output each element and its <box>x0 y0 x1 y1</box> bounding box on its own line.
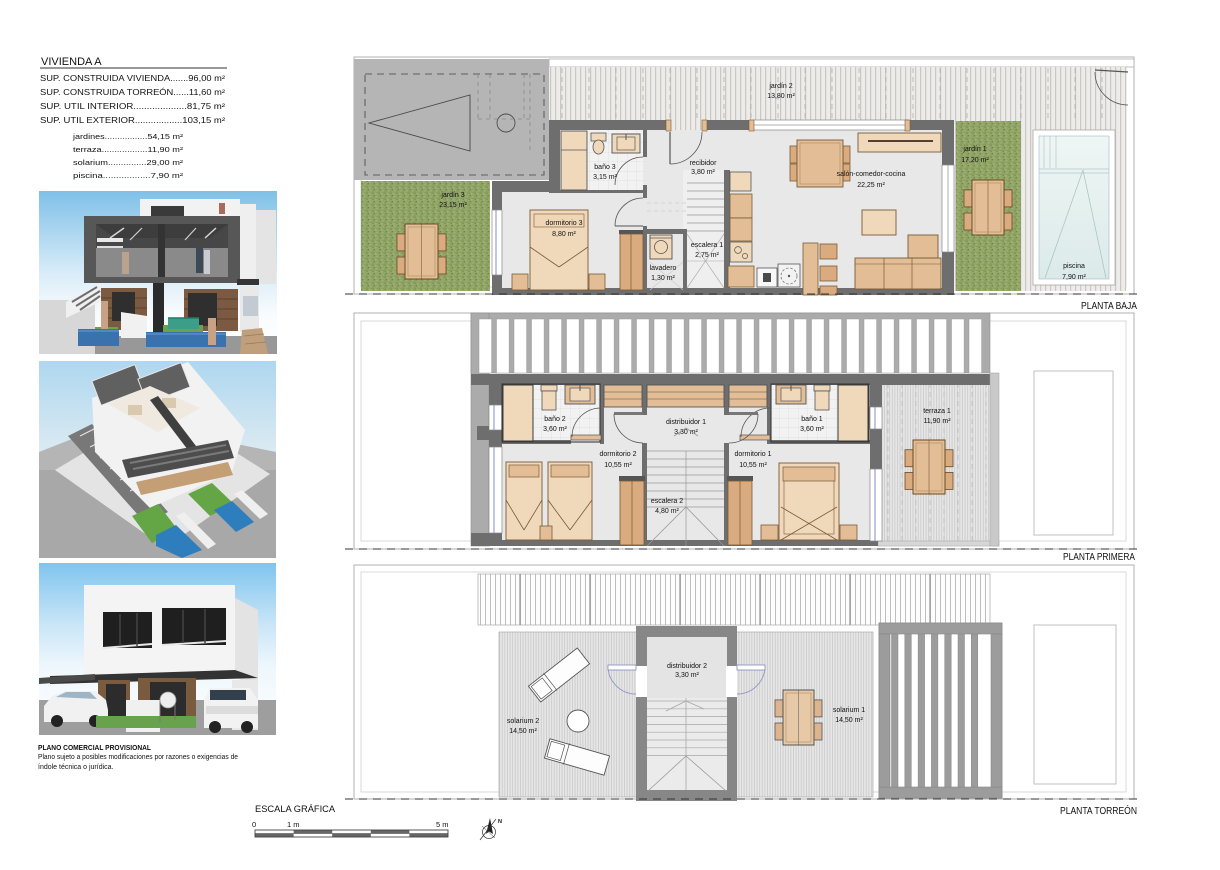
svg-text:lavadero: lavadero <box>650 265 677 272</box>
svg-text:terraza..................11,90: terraza..................11,90 m² <box>73 145 184 154</box>
svg-text:solarium...............29,00 m: solarium...............29,00 m² <box>73 158 184 167</box>
svg-text:N: N <box>498 819 502 825</box>
svg-text:10,55 m²: 10,55 m² <box>739 462 767 469</box>
svg-text:1,30 m²: 1,30 m² <box>651 275 675 282</box>
svg-text:2,75 m²: 2,75 m² <box>695 252 719 259</box>
svg-text:escalera 2: escalera 2 <box>651 498 683 505</box>
svg-text:jardín 3: jardín 3 <box>440 192 464 199</box>
svg-text:0: 0 <box>252 820 256 829</box>
svg-text:8,80 m²: 8,80 m² <box>552 231 576 238</box>
svg-text:3,15 m²: 3,15 m² <box>593 174 617 181</box>
svg-text:terraza 1: terraza 1 <box>923 408 951 415</box>
svg-text:ESCALA GRÁFICA: ESCALA GRÁFICA <box>255 804 336 814</box>
svg-text:dormitorio 3: dormitorio 3 <box>546 220 583 227</box>
svg-text:23,15 m²: 23,15 m² <box>439 202 467 209</box>
svg-text:13,80 m²: 13,80 m² <box>767 93 795 100</box>
svg-text:salón-comedor-cocina: salón-comedor-cocina <box>837 171 906 178</box>
svg-text:11,90 m²: 11,90 m² <box>923 418 951 425</box>
svg-text:piscina: piscina <box>1063 263 1085 270</box>
svg-text:4,80 m²: 4,80 m² <box>655 508 679 515</box>
svg-text:PLANTA PRIMERA: PLANTA PRIMERA <box>1063 552 1135 563</box>
svg-text:17,20 m²: 17,20 m² <box>961 157 989 164</box>
svg-text:dormitorio 2: dormitorio 2 <box>600 451 637 458</box>
svg-text:3,30 m²: 3,30 m² <box>674 429 698 436</box>
svg-text:dormitorio 1: dormitorio 1 <box>735 451 772 458</box>
svg-text:SUP. UTIL EXTERIOR............: SUP. UTIL EXTERIOR..................103,… <box>40 115 225 125</box>
svg-text:14,50 m²: 14,50 m² <box>509 728 537 735</box>
svg-text:3,60 m²: 3,60 m² <box>543 426 567 433</box>
svg-text:solarium 1: solarium 1 <box>833 707 865 714</box>
svg-text:SUP. UTIL INTERIOR............: SUP. UTIL INTERIOR....................81… <box>40 101 225 111</box>
svg-text:14,50 m²: 14,50 m² <box>835 717 863 724</box>
svg-text:PLANO COMERCIAL PROVISIONAL: PLANO COMERCIAL PROVISIONAL <box>38 743 151 752</box>
svg-text:escalera 1: escalera 1 <box>691 242 723 249</box>
svg-text:baño 2: baño 2 <box>544 416 566 423</box>
svg-text:jardín 2: jardín 2 <box>768 83 792 90</box>
svg-text:10,55 m²: 10,55 m² <box>604 462 632 469</box>
svg-text:5 m: 5 m <box>436 820 449 829</box>
svg-text:distribuidor 2: distribuidor 2 <box>667 663 707 670</box>
svg-text:distribuidor 1: distribuidor 1 <box>666 419 706 426</box>
svg-text:SUP. CONSTRUIDA TORREÓN......1: SUP. CONSTRUIDA TORREÓN......11,60 m² <box>40 87 225 97</box>
svg-text:piscina..................7,90: piscina..................7,90 m² <box>73 171 184 180</box>
svg-text:PLANTA BAJA: PLANTA BAJA <box>1081 301 1137 312</box>
svg-text:SUP. CONSTRUIDA VIVIENDA......: SUP. CONSTRUIDA VIVIENDA.......96,00 m² <box>40 73 225 83</box>
svg-text:PLANTA TORREÓN: PLANTA TORREÓN <box>1060 806 1137 817</box>
svg-text:solarium 2: solarium 2 <box>507 718 539 725</box>
svg-text:jardín 1: jardín 1 <box>962 146 986 153</box>
svg-text:3,80 m²: 3,80 m² <box>691 169 715 176</box>
svg-text:3,30 m²: 3,30 m² <box>675 672 699 679</box>
svg-text:jardines.................54,15: jardines.................54,15 m² <box>72 132 184 141</box>
svg-text:22,25 m²: 22,25 m² <box>857 182 885 189</box>
svg-text:7,90 m²: 7,90 m² <box>1062 274 1086 281</box>
svg-text:recibidor: recibidor <box>690 160 718 167</box>
svg-text:1 m: 1 m <box>287 820 300 829</box>
svg-text:Plano sujeto a posibles modifi: Plano sujeto a posibles modificaciones p… <box>38 754 238 761</box>
svg-text:índole técnica o jurídica.: índole técnica o jurídica. <box>38 764 114 771</box>
svg-text:VIVIENDA A: VIVIENDA A <box>41 56 102 68</box>
svg-text:baño 3: baño 3 <box>594 164 616 171</box>
svg-text:3,60 m²: 3,60 m² <box>800 426 824 433</box>
svg-text:baño 1: baño 1 <box>801 416 823 423</box>
